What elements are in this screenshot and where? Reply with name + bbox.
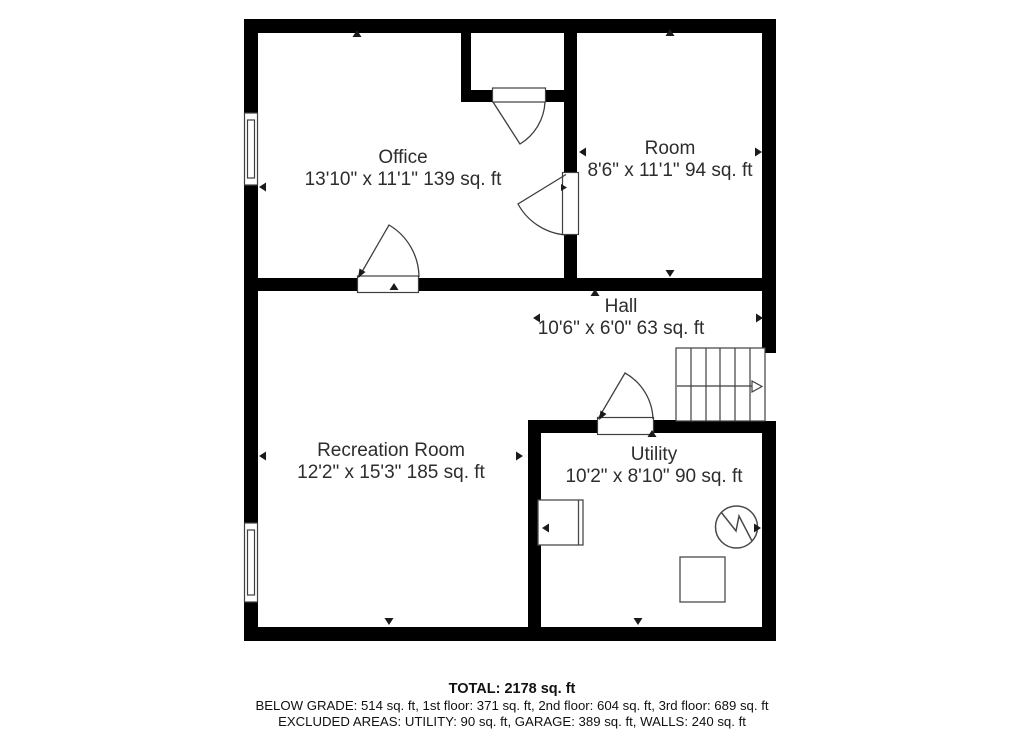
room-label-recreation: Recreation Room 12'2" x 15'3" 185 sq. ft xyxy=(297,440,485,484)
room-label-office: Office 13'10" x 11'1" 139 sq. ft xyxy=(305,147,502,191)
room-label-room: Room 8'6" x 11'1" 94 sq. ft xyxy=(587,138,752,182)
door-office-room-icon xyxy=(518,173,579,236)
door-closet-icon xyxy=(493,88,546,144)
room-dimensions: 12'2" x 15'3" 185 sq. ft xyxy=(297,462,485,484)
door-utility-icon xyxy=(598,373,654,435)
room-name: Utility xyxy=(565,444,742,466)
appliance-icon xyxy=(538,500,583,545)
floor-areas-text: BELOW GRADE: 514 sq. ft, 1st floor: 371 … xyxy=(0,698,1024,714)
floor-plan: Office 13'10" x 11'1" 139 sq. ft Room 8'… xyxy=(0,0,1024,738)
room-name: Hall xyxy=(538,296,705,318)
room-name: Recreation Room xyxy=(297,440,485,462)
room-dimensions: 8'6" x 11'1" 94 sq. ft xyxy=(587,160,752,182)
room-name: Room xyxy=(587,138,752,160)
excluded-areas-text: EXCLUDED AREAS: UTILITY: 90 sq. ft, GARA… xyxy=(0,714,1024,730)
floor-plan-drawing xyxy=(0,0,1024,738)
room-name: Office xyxy=(305,147,502,169)
stairs-icon xyxy=(676,348,765,421)
room-label-utility: Utility 10'2" x 8'10" 90 sq. ft xyxy=(565,444,742,488)
room-dimensions: 10'6" x 6'0" 63 sq. ft xyxy=(538,318,705,340)
room-dimensions: 13'10" x 11'1" 139 sq. ft xyxy=(305,169,502,191)
window-icon xyxy=(245,113,258,185)
water-heater-icon xyxy=(716,506,758,548)
window-icon xyxy=(245,523,258,602)
total-area-text: TOTAL: 2178 sq. ft xyxy=(0,680,1024,698)
door-office-icon xyxy=(358,225,420,293)
storage-box-icon xyxy=(680,557,725,602)
room-dimensions: 10'2" x 8'10" 90 sq. ft xyxy=(565,466,742,488)
room-label-hall: Hall 10'6" x 6'0" 63 sq. ft xyxy=(538,296,705,340)
area-summary: TOTAL: 2178 sq. ft BELOW GRADE: 514 sq. … xyxy=(0,680,1024,729)
